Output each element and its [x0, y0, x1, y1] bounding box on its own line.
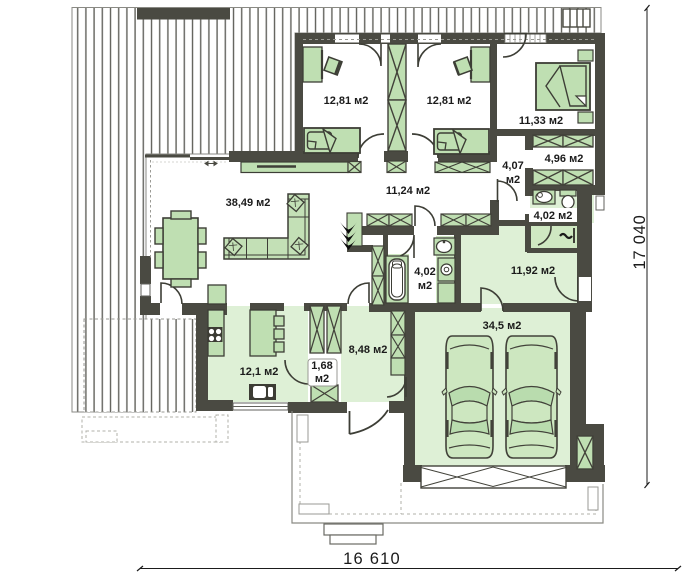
svg-text:16 610: 16 610: [343, 550, 401, 568]
svg-text:17 040: 17 040: [631, 214, 649, 269]
svg-text:34,5 м2: 34,5 м2: [483, 320, 522, 332]
svg-text:4,07: 4,07: [502, 160, 523, 172]
svg-text:4,02: 4,02: [414, 266, 435, 278]
svg-text:м2: м2: [418, 280, 432, 292]
svg-text:11,33 м2: 11,33 м2: [519, 115, 563, 127]
svg-text:38,49 м2: 38,49 м2: [226, 197, 271, 209]
svg-text:12,81 м2: 12,81 м2: [427, 95, 472, 107]
svg-text:м2: м2: [315, 373, 329, 385]
svg-text:12,81 м2: 12,81 м2: [324, 95, 369, 107]
svg-text:4,96 м2: 4,96 м2: [545, 153, 584, 165]
svg-text:1,68: 1,68: [311, 360, 332, 372]
svg-text:8,48 м2: 8,48 м2: [349, 344, 388, 356]
svg-text:11,24 м2: 11,24 м2: [386, 185, 430, 197]
svg-text:11,92 м2: 11,92 м2: [511, 265, 555, 277]
svg-text:м2: м2: [506, 174, 520, 186]
svg-text:12,1 м2: 12,1 м2: [240, 366, 279, 378]
svg-text:4,02 м2: 4,02 м2: [534, 210, 573, 222]
